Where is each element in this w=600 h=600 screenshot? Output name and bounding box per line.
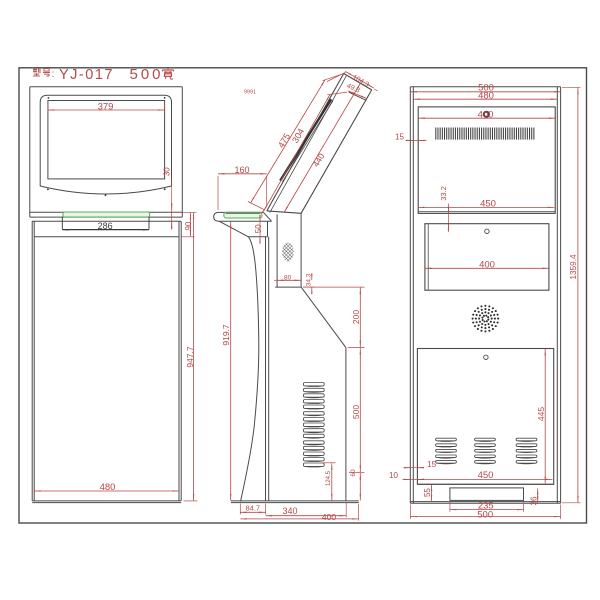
svg-text:55: 55	[423, 488, 432, 497]
svg-text:15: 15	[395, 132, 404, 141]
svg-text::: :	[52, 69, 55, 80]
svg-text:60: 60	[350, 469, 357, 477]
svg-text:340: 340	[282, 506, 297, 516]
svg-text:50: 50	[254, 224, 263, 233]
svg-text:34.3: 34.3	[305, 273, 312, 286]
svg-text:286: 286	[98, 221, 113, 231]
svg-text:80: 80	[284, 275, 292, 282]
svg-text:400: 400	[479, 259, 495, 270]
svg-text:919.7: 919.7	[221, 324, 231, 346]
svg-text:480: 480	[478, 90, 494, 101]
svg-text:30: 30	[162, 167, 171, 176]
svg-text:947.7: 947.7	[185, 346, 195, 368]
svg-text:84.7: 84.7	[245, 504, 260, 513]
svg-text:400: 400	[322, 512, 336, 522]
svg-text:90: 90	[184, 221, 193, 230]
svg-text:445: 445	[536, 407, 546, 421]
svg-text:450: 450	[478, 470, 494, 481]
svg-text:YJ-017: YJ-017	[59, 67, 114, 83]
svg-text:500: 500	[477, 510, 493, 521]
svg-text:124.5: 124.5	[326, 470, 332, 486]
svg-text:160: 160	[234, 165, 249, 175]
svg-text:480: 480	[100, 482, 116, 493]
svg-text:379: 379	[98, 102, 114, 113]
svg-text:200: 200	[351, 310, 361, 324]
svg-text:500: 500	[351, 405, 361, 419]
svg-text:10: 10	[389, 471, 398, 480]
svg-text:33.2: 33.2	[439, 186, 448, 201]
svg-text:15: 15	[427, 460, 436, 469]
svg-text:500: 500	[129, 66, 163, 83]
svg-text:36: 36	[530, 496, 539, 505]
svg-text:450: 450	[480, 199, 496, 210]
svg-text:1359.4: 1359.4	[569, 254, 578, 279]
svg-text:9991: 9991	[244, 90, 256, 96]
